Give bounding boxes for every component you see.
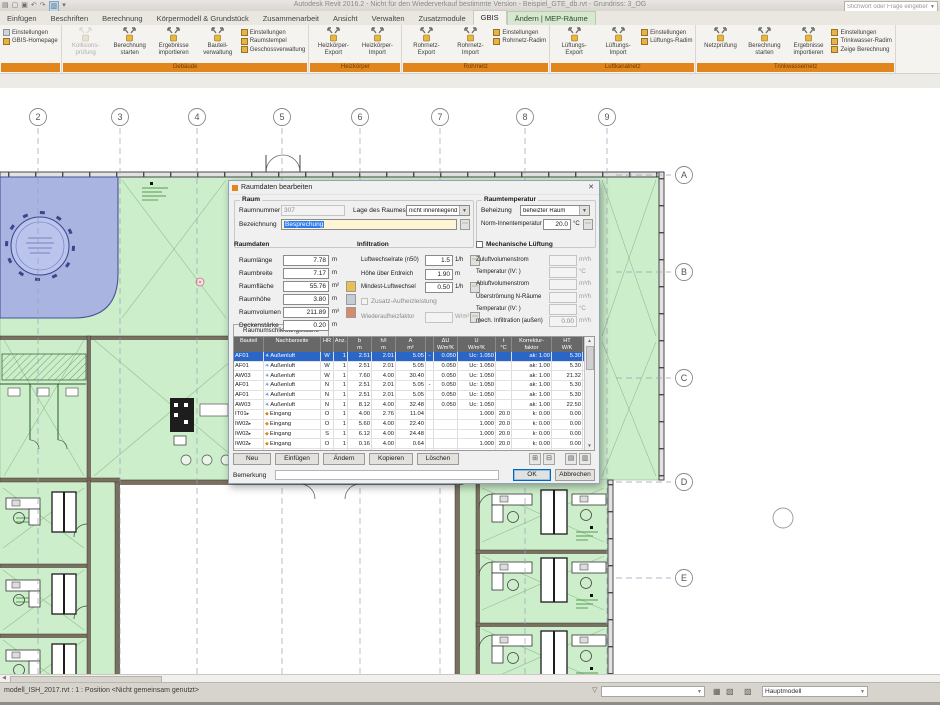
mech-lueftung-heading: Mechanische Lüftung: [486, 241, 553, 248]
bemerkung-label: Bemerkung: [233, 472, 266, 479]
bauteil-id: IW02: [235, 441, 249, 447]
tab-einf-gen[interactable]: Einfügen: [0, 12, 44, 25]
cell-hl: 4.00: [372, 371, 396, 380]
scroll-down-icon[interactable]: ▼: [585, 442, 594, 450]
chevron-down-icon[interactable]: ▼: [579, 206, 589, 215]
bauteil-table[interactable]: BauteilNachbarseiteHRAnz.bmh/lmAm²ΔUW/m²…: [233, 336, 595, 451]
l-schen-button[interactable]: Löschen: [417, 453, 459, 465]
ribbon-button-einstellungen[interactable]: Einstellungen: [241, 29, 306, 36]
ribbon-button-zeige-berechnung[interactable]: Zeige Berechnung: [831, 46, 891, 53]
cell-ht: 0.00: [552, 449, 583, 451]
table-header-cell: Am²: [396, 337, 426, 352]
gbis-tool-icon: [610, 27, 627, 42]
cell-u: Uc: 1.050: [458, 371, 496, 380]
table-row[interactable]: AF01✳AußenluftN12.512.015.05-0.050Uc: 1.…: [234, 381, 594, 391]
gbis-arrows-icon: [209, 27, 226, 42]
cell-b: 0.16: [348, 449, 372, 451]
einf-gen-button[interactable]: Einfügen: [275, 453, 319, 465]
ok-button[interactable]: OK: [513, 469, 551, 481]
cell-t: [496, 362, 512, 371]
tab-zusatzmodule[interactable]: Zusatzmodule: [412, 12, 473, 25]
ribbon-group-gebäude: Kollisions-prüfungBerechnungstartenErgeb…: [62, 25, 310, 73]
cell-dash: -: [426, 352, 434, 361]
header-line2: m²: [396, 345, 425, 352]
ribbon-button-label: Export: [553, 50, 595, 57]
lueftung-4-unit: °C: [579, 306, 586, 312]
infiltration-0-input[interactable]: 1.5: [425, 255, 453, 266]
raumdaten-1-input[interactable]: 7.17: [283, 268, 329, 279]
lage-dropdown[interactable]: nicht innenliegend ▼: [406, 205, 470, 216]
cell-du: [434, 439, 458, 448]
svg-text:7: 7: [437, 112, 442, 122]
cell-u: Uc: 1.050: [458, 352, 496, 361]
wiederaufheiz-label: Wiederaufheizfaktor: [361, 314, 414, 320]
header-line2: m: [348, 345, 371, 352]
ribbon-button-einstellungen[interactable]: Einstellungen: [831, 29, 891, 36]
table-header-cell: HR: [321, 337, 334, 352]
table-sort-icon[interactable]: ▤: [565, 453, 577, 465]
kopieren-button[interactable]: Kopieren: [369, 453, 413, 465]
lueftung-1-label: Temperatur (IV: ): [476, 269, 521, 275]
cell-ht: 21.32: [552, 371, 583, 380]
ribbon-button-geschossverwaltung[interactable]: Geschossverwaltung: [241, 46, 306, 53]
gbis-tool-icon: [462, 27, 479, 42]
table-row[interactable]: IW02▸◆EingangS16.124.0024.481.00020.0k: …: [234, 430, 594, 440]
ribbon-button-label: Geschossverwaltung: [250, 47, 306, 53]
gbis-tool-icon: [566, 27, 583, 42]
table-row[interactable]: IT01▸◆EingangO14.002.7611.041.00020.0k: …: [234, 410, 594, 420]
ribbon-button-rohrnetz-export[interactable]: Rohrnetz-Export: [405, 26, 447, 56]
infiltration-1-input[interactable]: 1.90: [425, 269, 453, 280]
ribbon-button-l-ftungs-export[interactable]: Lüftungs-Export: [553, 26, 595, 56]
design-options-dropdown[interactable]: Hauptmodell ▼: [762, 686, 868, 697]
ribbon-button-label: Einstellungen: [502, 30, 538, 36]
dialog-titlebar[interactable]: Raumdaten bearbeiten ✕: [229, 181, 599, 195]
cell-korr: ak: 1.00: [512, 362, 552, 371]
ribbon-stack: EinstellungenRohrnetz-Radim: [493, 26, 546, 45]
cell-ht: 0.00: [552, 430, 583, 439]
ribbon-button-rohrnetz-radim[interactable]: Rohrnetz-Radim: [493, 38, 546, 45]
chevron-down-icon[interactable]: ▼: [459, 206, 469, 215]
partial-stack: EinstellungenGBIS-Homepage: [3, 26, 58, 45]
lueftung-2-label: Abluftvolumenstrom: [476, 281, 529, 287]
ribbon-button-label: Netzprüfung: [699, 43, 741, 50]
cell-typ: ✳Außenluft: [264, 391, 321, 400]
ribbon-button-label: GBIS-Homepage: [12, 38, 58, 44]
blue-room: [0, 177, 118, 318]
ribbon-button-berechnungstarten[interactable]: Berechnungstarten: [109, 26, 151, 56]
cell-t: [496, 371, 512, 380]
svg-text:5: 5: [279, 112, 284, 122]
cell-anz: 1: [334, 381, 348, 390]
volume-pick-icon[interactable]: [346, 307, 356, 318]
cell-u: 1.000: [458, 439, 496, 448]
cell-u: Uc: 1.050: [458, 391, 496, 400]
gbis-tool-icon: [209, 27, 226, 42]
ribbon-button-heizk-rper-import[interactable]: Heizkörper-Import: [356, 26, 398, 56]
cell-typ: ✳Außenluft: [264, 381, 321, 390]
bezeichnung-input[interactable]: Besprechung: [281, 219, 457, 230]
header-line2: °C: [496, 345, 511, 352]
ribbon-button-label: Import: [449, 50, 491, 57]
lage-value: nicht innenliegend: [407, 208, 459, 214]
infiltration-1-label: Höhe über Erdreich: [361, 271, 413, 277]
cell-anz: 1: [334, 362, 348, 371]
bemerkung-input[interactable]: [275, 470, 499, 480]
ribbon-button-label: Zeige Berechnung: [840, 47, 889, 53]
cell-t: [496, 391, 512, 400]
cell-bauteil: AW03: [234, 371, 264, 380]
cell-hl: 2.01: [372, 362, 396, 371]
ribbon-stack: EinstellungenLüftungs-Radim: [641, 26, 692, 45]
raumdaten-3-unit: m: [332, 296, 337, 302]
outside-air-icon: ✳: [265, 392, 269, 398]
tab-beschriften[interactable]: Beschriften: [44, 12, 96, 25]
cell-b: 7.60: [348, 371, 372, 380]
cell-a: 32.48: [396, 400, 426, 409]
tab-zusammenarbeit[interactable]: Zusammenarbeit: [256, 12, 326, 25]
gbis-tool-icon: [712, 27, 729, 42]
ribbon-button-label: Lüftungs-Radim: [650, 38, 692, 44]
cell-a: 5.05: [396, 381, 426, 390]
height-pick-icon[interactable]: [346, 294, 356, 305]
cell-korr: ak: 1.00: [512, 391, 552, 400]
search-dropdown-icon[interactable]: ▼: [928, 4, 937, 10]
flag-icon: ▸: [249, 450, 252, 451]
tab-ansicht[interactable]: Ansicht: [326, 12, 365, 25]
cell-hl: 4.00: [372, 439, 396, 448]
editable-only-icon[interactable]: ▧: [726, 686, 734, 697]
area-pick-icon[interactable]: [346, 281, 356, 292]
gbis-arrows-icon: [756, 27, 773, 42]
ribbon-button-label: Einstellungen: [250, 30, 286, 36]
ribbon: EinstellungenGBIS-Homepage Kollisions-pr…: [0, 25, 940, 73]
ribbon-button-label: prüfung: [65, 50, 107, 57]
ribbon-button-ergebnisseimportieren[interactable]: Ergebnisseimportieren: [787, 26, 829, 56]
lueftung-5-label: mech. Infiltration (außen): [476, 318, 543, 324]
cell-hr: N: [321, 391, 334, 400]
raumdaten-0-input[interactable]: 7.78: [283, 255, 329, 266]
raumdaten-1-unit: m: [332, 270, 337, 276]
raumdaten-4-input[interactable]: 211.89: [283, 307, 329, 318]
tab-berechnung[interactable]: Berechnung: [95, 12, 149, 25]
cell-typ: ✳Außenluft: [264, 352, 321, 361]
ribbon-button-trinkwasser-radim[interactable]: Trinkwasser-Radim: [831, 38, 891, 45]
ribbon-button-l-ftungs-import[interactable]: Lüftungs-Import: [597, 26, 639, 56]
tab--ndern-mep-r-ume[interactable]: Ändern | MEP-Räume: [507, 11, 596, 25]
header-line2: W/K: [552, 345, 582, 352]
bauteil-id: AF01: [235, 363, 249, 369]
bauteil-id: AF01: [235, 382, 249, 388]
wiederaufheiz-input: [425, 312, 453, 323]
cell-anz: 1: [334, 449, 348, 451]
norm-temp-unit: °C: [573, 221, 580, 227]
cell-a: 30.40: [396, 371, 426, 380]
cell-u: 1.000: [458, 410, 496, 419]
nachbarseite-label: Eingang: [270, 441, 291, 447]
cell-ht: 0.00: [552, 410, 583, 419]
dialog-icon: [232, 185, 238, 191]
flag-icon: ▸: [247, 411, 250, 417]
raumdaten-2-input[interactable]: 55.76: [283, 281, 329, 292]
cell-du: 0.050: [434, 362, 458, 371]
lueftung-1-input: [549, 267, 577, 278]
cell-korr: k: 0.00: [512, 439, 552, 448]
cell-t: 20.0: [496, 420, 512, 429]
ribbon-button-kollisions-pr-fung: Kollisions-prüfung: [65, 26, 107, 56]
cell-anz: 1: [334, 439, 348, 448]
settings-icon: [3, 29, 10, 36]
cell-dash: [426, 439, 434, 448]
-ndern-button[interactable]: Ändern: [323, 453, 365, 465]
cell-u: 1.000: [458, 449, 496, 451]
close-icon[interactable]: ✕: [583, 182, 599, 194]
neu-button[interactable]: Neu: [233, 453, 271, 465]
settings-icon: [241, 29, 248, 36]
beheizung-dropdown[interactable]: beheizter Raum ▼: [520, 205, 590, 216]
chevron-down-icon[interactable]: ▼: [860, 689, 867, 695]
header-line1: Bauteil: [234, 338, 263, 345]
cell-hl: 4.00: [372, 420, 396, 429]
table-header-cell: [426, 337, 434, 352]
table-tool-icon[interactable]: ⊟: [543, 453, 555, 465]
lueftung-2-input: [549, 279, 577, 290]
table-row[interactable]: AF01✳AußenluftW12.512.015.050.050Uc: 1.0…: [234, 362, 594, 372]
cell-t: [496, 400, 512, 409]
cell-dash: -: [426, 381, 434, 390]
status-filter-input[interactable]: ▼: [601, 686, 705, 697]
lueftung-0-input: [549, 255, 577, 266]
cell-hl: 2.01: [372, 381, 396, 390]
lueftung-0-unit: m³/h: [579, 257, 591, 263]
cell-du: 0.050: [434, 381, 458, 390]
cell-du: [434, 410, 458, 419]
ribbon-button-einstellungen[interactable]: Einstellungen: [641, 29, 692, 36]
cell-hr: N: [321, 400, 334, 409]
tool-icon: [831, 46, 838, 53]
table-row[interactable]: IW02▸◆EingangO10.164.000.641.00020.0k: 0…: [234, 439, 594, 449]
scrollbar-thumb[interactable]: [586, 346, 594, 370]
ribbon-button-label: Trinkwasser-Radim: [840, 38, 891, 44]
ribbon-button-label: Rohrnetz-Radim: [502, 38, 546, 44]
design-options-icon[interactable]: ▨: [744, 686, 752, 697]
ribbon-tab-bar: EinfügenBeschriftenBerechnungKörpermodel…: [0, 11, 940, 26]
cell-ht: 5.30: [552, 352, 583, 361]
ribbon-button-einstellungen[interactable]: Einstellungen: [493, 29, 546, 36]
cell-korr: k: 0.00: [512, 430, 552, 439]
table-filter-icon[interactable]: ▥: [579, 453, 591, 465]
ribbon-group-rohrnetz: Rohrnetz-ExportRohrnetz-ImportEinstellun…: [402, 25, 550, 73]
raumdaten-4-unit: m³: [332, 309, 339, 315]
worksets-icon[interactable]: ▦: [713, 686, 721, 697]
norm-temp-picker-button[interactable]: ⋯: [583, 219, 593, 230]
cell-ht: 5.30: [552, 381, 583, 390]
ribbon-group-heizkörper: Heizkörper-ExportHeizkörper-ImportHeizkö…: [309, 25, 402, 73]
cell-t: [496, 381, 512, 390]
raumdaten-0-unit: m: [332, 257, 337, 263]
cell-anz: 1: [334, 391, 348, 400]
cell-ht: 5.30: [552, 391, 583, 400]
cell-bauteil: AF01: [234, 381, 264, 390]
cell-t: 20.0: [496, 430, 512, 439]
entrance-icon: ◆: [265, 441, 269, 447]
status-bar: modell_ISH_2017.rvt : 1 : Position <Nich…: [0, 682, 940, 703]
gbis-arrows-icon: [712, 27, 729, 42]
header-line1: HR: [321, 338, 333, 345]
table-header-cell: h/lm: [372, 337, 396, 352]
table-scrollbar[interactable]: ▲▼: [584, 337, 594, 450]
cell-b: 5.60: [348, 420, 372, 429]
cell-b: 2.51: [348, 381, 372, 390]
cell-bauteil: AF01: [234, 391, 264, 400]
table-header-cell: t°C: [496, 337, 512, 352]
group-raumtemperatur-label: Raumtemperatur: [482, 196, 538, 203]
cell-hr: O: [321, 410, 334, 419]
ribbon-button-gbis-homepage[interactable]: GBIS-Homepage: [3, 38, 58, 45]
cell-dash: [426, 362, 434, 371]
ribbon-button-berechnungstarten[interactable]: Berechnungstarten: [743, 26, 785, 56]
cell-hr: O: [321, 420, 334, 429]
outside-air-icon: ✳: [265, 402, 269, 408]
svg-text:C: C: [681, 373, 688, 383]
cancel-button[interactable]: Abbrechen: [555, 469, 595, 481]
scroll-up-icon[interactable]: ▲: [585, 337, 594, 345]
ribbon-button-einstellungen[interactable]: Einstellungen: [3, 29, 58, 36]
cell-typ: ◆Eingang: [264, 449, 321, 451]
mech-lueftung-checkbox[interactable]: [476, 241, 483, 248]
cell-dash: [426, 371, 434, 380]
ribbon-button-label: Export: [312, 50, 354, 57]
filter-icon[interactable]: ▽: [592, 686, 597, 694]
ribbon-button-raumstempel[interactable]: Raumstempel: [241, 38, 306, 45]
gbis-arrows-icon: [610, 27, 627, 42]
cell-a: 24.48: [396, 430, 426, 439]
outside-air-icon: ✳: [265, 373, 269, 379]
cell-ht: 22.50: [552, 400, 583, 409]
raumdaten-heading: Raumdaten: [234, 241, 269, 248]
cell-dash: [426, 420, 434, 429]
raumdaten-3-input[interactable]: 3.80: [283, 294, 329, 305]
table-header-cell: ΔUW/m²K: [434, 337, 458, 352]
nachbarseite-label: Außenluft: [270, 392, 295, 398]
table-row[interactable]: AF01✳AußenluftW12.512.015.05-0.050Uc: 1.…: [234, 352, 594, 362]
header-line2: W/m²K: [434, 345, 457, 352]
raumnummer-label: Raumnummer: [239, 207, 280, 214]
empty-grid-bubble: [773, 508, 793, 528]
cell-anz: 1: [334, 352, 348, 361]
raumdaten-2-label: Raumfläche: [239, 283, 274, 290]
table-header-cell: Bauteil: [234, 337, 264, 352]
gbis-arrows-icon: [165, 27, 182, 42]
tab-verwalten[interactable]: Verwalten: [365, 12, 412, 25]
ribbon-group-partial: EinstellungenGBIS-Homepage: [0, 25, 62, 73]
header-line1: Nachbarseite: [264, 338, 320, 345]
norm-temp-input[interactable]: 20.0: [543, 219, 571, 230]
chevron-down-icon[interactable]: ▼: [697, 689, 704, 695]
cell-korr: ak: 1.00: [512, 352, 552, 361]
table-row[interactable]: IW02▸◆EingangO15.604.0022.401.00020.0k: …: [234, 420, 594, 430]
outside-air-icon: ✳: [265, 382, 269, 388]
ribbon-button-netzpr-fung[interactable]: Netzprüfung: [699, 26, 741, 50]
design-options-value: Hauptmodell: [763, 688, 860, 695]
ribbon-button-label: Einstellungen: [840, 30, 876, 36]
gbis-tool-icon: [325, 27, 342, 42]
infiltration-2-unit: 1/h: [455, 284, 463, 290]
tool-icon: [241, 38, 248, 45]
tab-k-rpermodell-grundst-ck[interactable]: Körpermodell & Grundstück: [150, 12, 256, 25]
cell-typ: ◆Eingang: [264, 420, 321, 429]
cell-hr: O: [321, 439, 334, 448]
ribbon-button-rohrnetz-import[interactable]: Rohrnetz-Import: [449, 26, 491, 56]
ribbon-button-bauteil-verwaltung[interactable]: Bauteil-verwaltung: [197, 26, 239, 56]
table-tool-icon[interactable]: ⊞: [529, 453, 541, 465]
ribbon-button-label: Berechnung: [743, 43, 785, 50]
group-raum-label: Raum: [240, 196, 262, 203]
table-row[interactable]: AW03✳AußenluftN18.124.0032.480.050Uc: 1.…: [234, 400, 594, 410]
tab-gbis[interactable]: GBIS: [473, 10, 507, 25]
nachbarseite-label: Außenluft: [270, 353, 295, 359]
cell-hl: 2.01: [372, 391, 396, 400]
ribbon-button-ergebnisseimportieren[interactable]: Ergebnisseimportieren: [153, 26, 195, 56]
settings-icon: [831, 29, 838, 36]
ribbon-group-label: [1, 63, 60, 72]
cell-dash: [426, 430, 434, 439]
ribbon-button-label: Heizkörper-: [312, 43, 354, 50]
cell-korr: ak: 1.00: [512, 400, 552, 409]
cell-u: 1.000: [458, 430, 496, 439]
raumdaten-5-label: Deckenstärke: [239, 322, 279, 329]
lueftung-3-label: Überströmung N-Räume: [476, 294, 541, 300]
ribbon-button-label: Ergebnisse: [153, 43, 195, 50]
table-row[interactable]: AF01✳AußenluftN12.512.015.050.050Uc: 1.0…: [234, 391, 594, 401]
cell-typ: ✳Außenluft: [264, 400, 321, 409]
ribbon-button-label: Heizkörper-: [356, 43, 398, 50]
table-row[interactable]: AW03✳AußenluftW17.604.0030.400.050Uc: 1.…: [234, 371, 594, 381]
gbis-tool-icon: [121, 27, 138, 42]
ribbon-button-l-ftungs-radim[interactable]: Lüftungs-Radim: [641, 38, 692, 45]
cell-hl: 2.01: [372, 352, 396, 361]
ribbon-button-label: Einstellungen: [650, 30, 686, 36]
svg-text:8: 8: [522, 112, 527, 122]
cell-t: 20.0: [496, 410, 512, 419]
scroll-left-icon[interactable]: ◀: [0, 675, 8, 682]
raumdaten-5-input[interactable]: 0.20: [283, 320, 329, 331]
homepage-icon: [3, 38, 10, 45]
gbis-tool-icon: [418, 27, 435, 42]
svg-text:4: 4: [194, 112, 199, 122]
bezeichnung-picker-button[interactable]: ⋯: [460, 219, 470, 230]
cell-a: 22.40: [396, 420, 426, 429]
ribbon-button-heizk-rper-export[interactable]: Heizkörper-Export: [312, 26, 354, 56]
entrance-icon: ◆: [265, 411, 269, 417]
cell-hr: W: [321, 371, 334, 380]
beheizung-label: Beheizung: [481, 207, 512, 214]
outside-air-icon: ✳: [265, 363, 269, 369]
table-row[interactable]: IW02▸◆EingangO10.164.000.641.00020.0k: 0…: [234, 449, 594, 451]
tool-icon: [241, 46, 248, 53]
cell-anz: 1: [334, 371, 348, 380]
tool-icon: [641, 38, 648, 45]
infiltration-2-input[interactable]: 0.50: [425, 282, 453, 293]
cell-b: 2.51: [348, 362, 372, 371]
cell-hr: S: [321, 430, 334, 439]
table-header: BauteilNachbarseiteHRAnz.bmh/lmAm²ΔUW/m²…: [234, 337, 594, 352]
zusatz-aufheiz-checkbox: [361, 298, 368, 305]
lueftung-2-unit: m³/h: [579, 281, 591, 287]
svg-text:B: B: [681, 267, 687, 277]
ribbon-group-label: Heizkörper: [310, 63, 400, 72]
raumdaten-5-unit: m: [332, 322, 337, 328]
